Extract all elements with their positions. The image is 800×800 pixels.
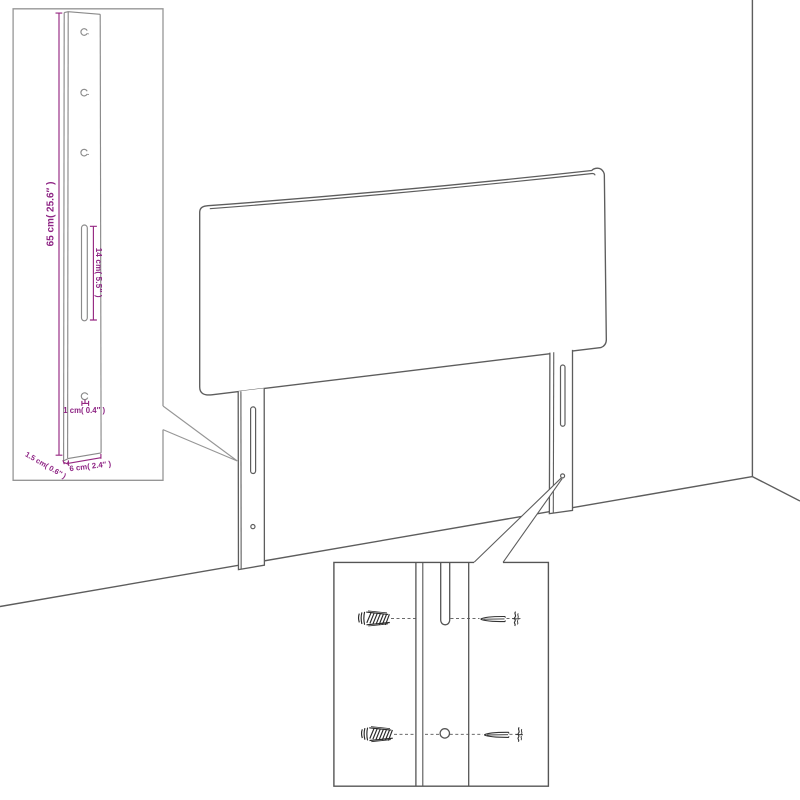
svg-text:14 cm( 5.5″ ): 14 cm( 5.5″ )	[94, 248, 103, 298]
svg-text:1 cm( 0.4″ ): 1 cm( 0.4″ )	[63, 406, 105, 415]
svg-text:65 cm( 25.6″ ): 65 cm( 25.6″ )	[46, 182, 57, 247]
